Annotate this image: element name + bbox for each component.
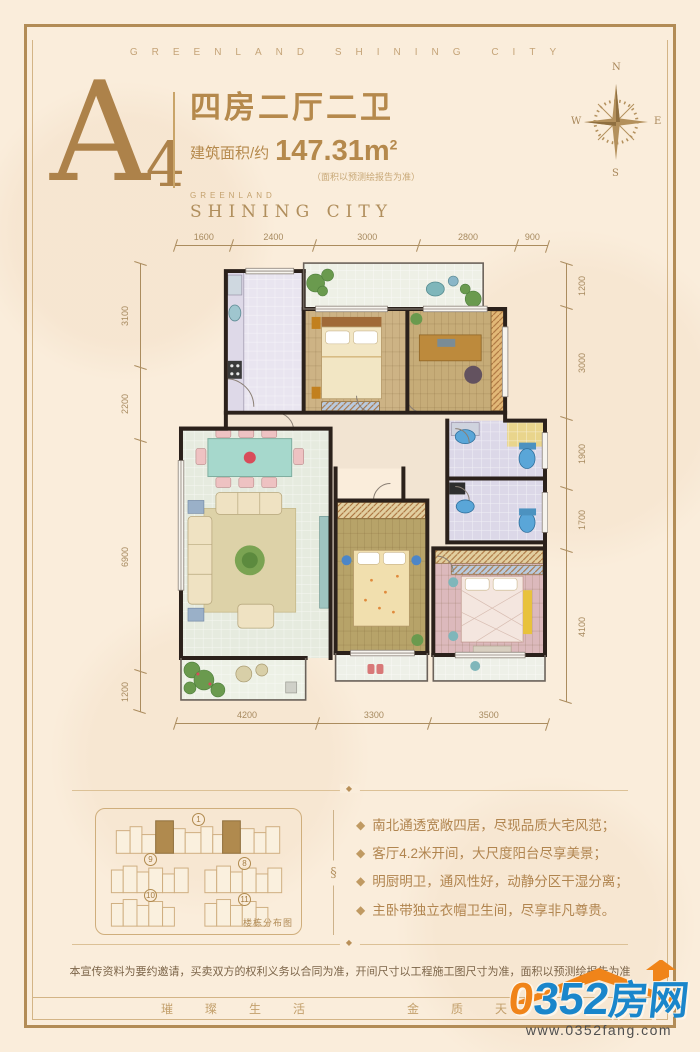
compass-icon: [571, 60, 661, 180]
area-row: 建筑面积/约 147.31m2: [190, 137, 490, 166]
building-number-10: 10: [144, 889, 157, 902]
header-block: 四房二厅二卫 建筑面积/约 147.31m2 （面积以预测绘报告为准） GREE…: [190, 82, 490, 222]
building-map-label: 楼栋分布图: [243, 916, 293, 929]
feature-text: 客厅4.2米开间，大尺度阳台尽享美景；: [372, 846, 607, 862]
divider-line-upper: ◆: [72, 790, 628, 791]
dim-label: 1900: [577, 444, 587, 464]
logo-chinese: 房网: [606, 979, 691, 1023]
dim-label: 1600: [194, 232, 214, 245]
building-number-1: 1: [192, 813, 205, 826]
unit-letter: A: [50, 76, 150, 189]
dim-label: 3000: [357, 232, 377, 245]
dim-label: 2400: [263, 232, 283, 245]
building-map: 1 9 8 10 11 楼栋分布图: [95, 808, 302, 935]
dim-label: 1200: [577, 276, 587, 296]
dim-label: 2200: [120, 394, 130, 414]
dim-label: 3100: [120, 306, 130, 326]
area-label: 建筑面积/约: [190, 142, 269, 166]
dim-left: 3100 2200 6900 1200: [140, 264, 156, 712]
floorplan-svg: [176, 260, 548, 704]
divider-ornament-upper: ◆: [340, 784, 360, 793]
building-number-9: 9: [144, 853, 157, 866]
unit-code: A 4: [50, 76, 185, 189]
diamond-bullet-icon: ◆: [356, 903, 365, 919]
unit-number: 4: [146, 140, 185, 190]
feature-text: 主卧带独立衣帽卫生间，尽享非凡尊贵。: [372, 903, 615, 919]
feature-item: ◆ 主卧带独立衣帽卫生间，尽享非凡尊贵。: [356, 903, 648, 919]
dim-label: 1200: [120, 682, 130, 702]
feature-list: ◆ 南北通透宽敞四居，尽现品质大宅风范； ◆ 客厅4.2米开间，大尺度阳台尽享美…: [356, 818, 648, 931]
feature-item: ◆ 客厅4.2米开间，大尺度阳台尽享美景；: [356, 846, 648, 862]
header-divider: [173, 92, 175, 188]
dim-label: 4200: [237, 710, 257, 723]
diamond-bullet-icon: ◆: [356, 846, 365, 862]
divider-ornament-lower: ◆: [340, 938, 360, 947]
brand-band-bottom-left: 璀璨生活: [161, 1000, 337, 1017]
diamond-bullet-icon: ◆: [356, 818, 365, 834]
dim-label: 900: [525, 232, 540, 245]
compass-s: S: [612, 168, 619, 179]
dim-label: 3500: [479, 710, 499, 723]
logo-text: 0352房网: [501, 976, 698, 1021]
building-number-11: 11: [238, 893, 251, 906]
site-logo: 0352房网 www.0352fang.com: [503, 960, 695, 1048]
dim-label: 1700: [577, 510, 587, 530]
dim-bottom: 4200 3300 3500: [176, 706, 548, 724]
feature-item: ◆ 南北通透宽敞四居，尽现品质大宅风范；: [356, 818, 648, 834]
dim-label: 3000: [577, 353, 587, 373]
logo-url: www.0352fang.com: [503, 1022, 695, 1038]
dim-top: 1600 2400 3000 2800 900: [176, 228, 548, 246]
area-value: 147.31m2: [275, 137, 397, 166]
feature-item: ◆ 明厨明卫，通风性好，动静分区干湿分离；: [356, 874, 648, 890]
compass-e: E: [654, 116, 661, 127]
frame-line-right: [667, 40, 668, 1019]
feature-text: 南北通透宽敞四居，尽现品质大宅风范；: [372, 818, 615, 834]
compass-n: N: [612, 62, 621, 73]
floorplan-drawing: [176, 260, 548, 704]
dim-label: 6900: [120, 547, 130, 567]
dim-right: 1200 3000 1900 1700 4100: [566, 264, 582, 702]
building-number-8: 8: [238, 857, 251, 870]
brand-small: GREENLAND: [190, 191, 490, 200]
brand-band-top-text: GREENLAND SHINING CITY: [130, 47, 570, 58]
feature-text: 明厨明卫，通风性好，动静分区干湿分离；: [372, 874, 629, 890]
section-divider-ornament: §: [330, 860, 337, 885]
section-vertical-divider: §: [333, 810, 334, 935]
dim-label: 4100: [577, 617, 587, 637]
dim-label: 3300: [364, 710, 384, 723]
area-sup: 2: [390, 136, 398, 152]
area-note: （面积以预测绘报告为准）: [190, 170, 420, 183]
compass-w: W: [571, 116, 581, 127]
dim-label: 2800: [458, 232, 478, 245]
brand-big: SHINING CITY: [190, 202, 490, 222]
logo-number: 352: [531, 973, 611, 1024]
diamond-bullet-icon: ◆: [356, 874, 365, 890]
frame-line-left: [32, 40, 33, 1019]
divider-line-lower: ◆: [72, 944, 628, 945]
compass-rose: N E S W: [571, 60, 661, 180]
floorplan-poster: GREENLAND SHINING CITY A 4 四房二厅二卫 建筑面积/约…: [0, 0, 700, 1052]
layout-title: 四房二厅二卫: [190, 82, 490, 127]
